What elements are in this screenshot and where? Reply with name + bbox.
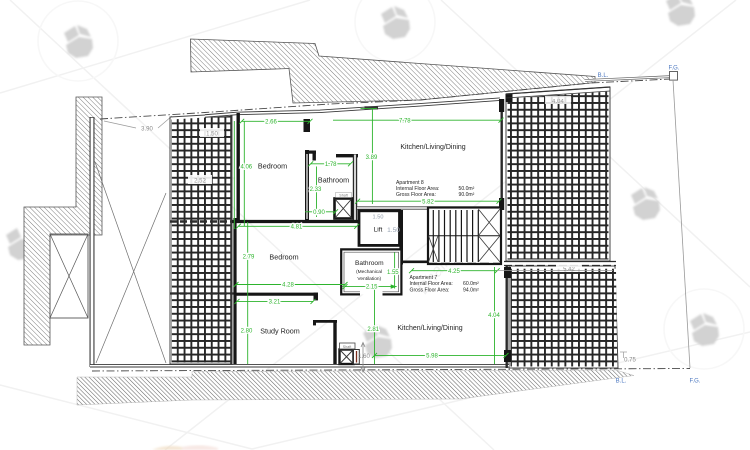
svg-text:Kitchen/Living/Dining: Kitchen/Living/Dining (397, 325, 462, 332)
svg-text:2.80: 2.80 (241, 328, 253, 334)
svg-text:Kitchen/Living/Dining: Kitchen/Living/Dining (400, 144, 465, 151)
svg-text:Study Room: Study Room (260, 326, 300, 335)
svg-text:Lift: Lift (374, 227, 383, 234)
svg-text:Shaft: Shaft (339, 194, 347, 198)
svg-text:1.55: 1.55 (387, 270, 399, 276)
svg-text:7.78: 7.78 (399, 118, 411, 124)
svg-text:0.90: 0.90 (313, 210, 325, 216)
svg-text:4.04: 4.04 (488, 313, 500, 319)
svg-text:Gross Floor Area:: Gross Floor Area: (410, 288, 450, 294)
svg-text:5.42: 5.42 (563, 267, 575, 273)
svg-text:Bedroom: Bedroom (258, 162, 287, 171)
svg-text:2.79: 2.79 (243, 254, 255, 260)
svg-text:B.L.: B.L. (616, 379, 627, 385)
svg-text:4.28: 4.28 (282, 283, 294, 289)
svg-text:Apartment 7: Apartment 7 (410, 275, 438, 281)
svg-text:Shaft: Shaft (343, 345, 351, 349)
svg-text:94.0m²: 94.0m² (463, 288, 479, 294)
svg-text:4.25: 4.25 (448, 269, 460, 275)
svg-text:Bathroom: Bathroom (355, 260, 384, 267)
svg-text:Bathroom: Bathroom (318, 175, 349, 184)
svg-text:3.21: 3.21 (269, 300, 281, 306)
svg-text:3.90: 3.90 (141, 127, 153, 133)
svg-text:90.0m²: 90.0m² (459, 192, 475, 198)
svg-text:0.75: 0.75 (624, 358, 636, 364)
svg-text:1.78: 1.78 (325, 162, 337, 168)
svg-text:5.82: 5.82 (422, 199, 434, 205)
svg-text:5.98: 5.98 (426, 354, 438, 360)
svg-text:1.50: 1.50 (206, 132, 218, 138)
svg-text:4.06: 4.06 (240, 165, 252, 171)
svg-text:2.33: 2.33 (310, 187, 322, 193)
svg-text:Bedroom: Bedroom (269, 253, 298, 262)
svg-text:2.52: 2.52 (194, 179, 206, 185)
svg-text:2.81: 2.81 (367, 327, 379, 333)
svg-text:B.L.: B.L. (598, 73, 609, 79)
svg-text:1.60: 1.60 (358, 354, 370, 360)
svg-text:4.04: 4.04 (552, 99, 564, 105)
svg-text:(Mechanical: (Mechanical (356, 269, 382, 275)
svg-text:60.0m²: 60.0m² (463, 281, 479, 287)
svg-text:Gross Floor Area:: Gross Floor Area: (396, 192, 436, 198)
svg-text:1.50: 1.50 (373, 214, 384, 220)
svg-text:Internal Floor Area:: Internal Floor Area: (410, 281, 453, 287)
svg-text:1.50: 1.50 (387, 227, 400, 234)
svg-text:4.81: 4.81 (291, 224, 303, 230)
svg-text:Ventilation): Ventilation) (357, 276, 381, 282)
svg-text:2.66: 2.66 (265, 119, 277, 125)
svg-text:2.15: 2.15 (366, 285, 378, 291)
svg-text:F.G.: F.G. (689, 379, 700, 385)
svg-text:F.G.: F.G. (668, 66, 679, 72)
svg-text:3.89: 3.89 (366, 155, 378, 161)
